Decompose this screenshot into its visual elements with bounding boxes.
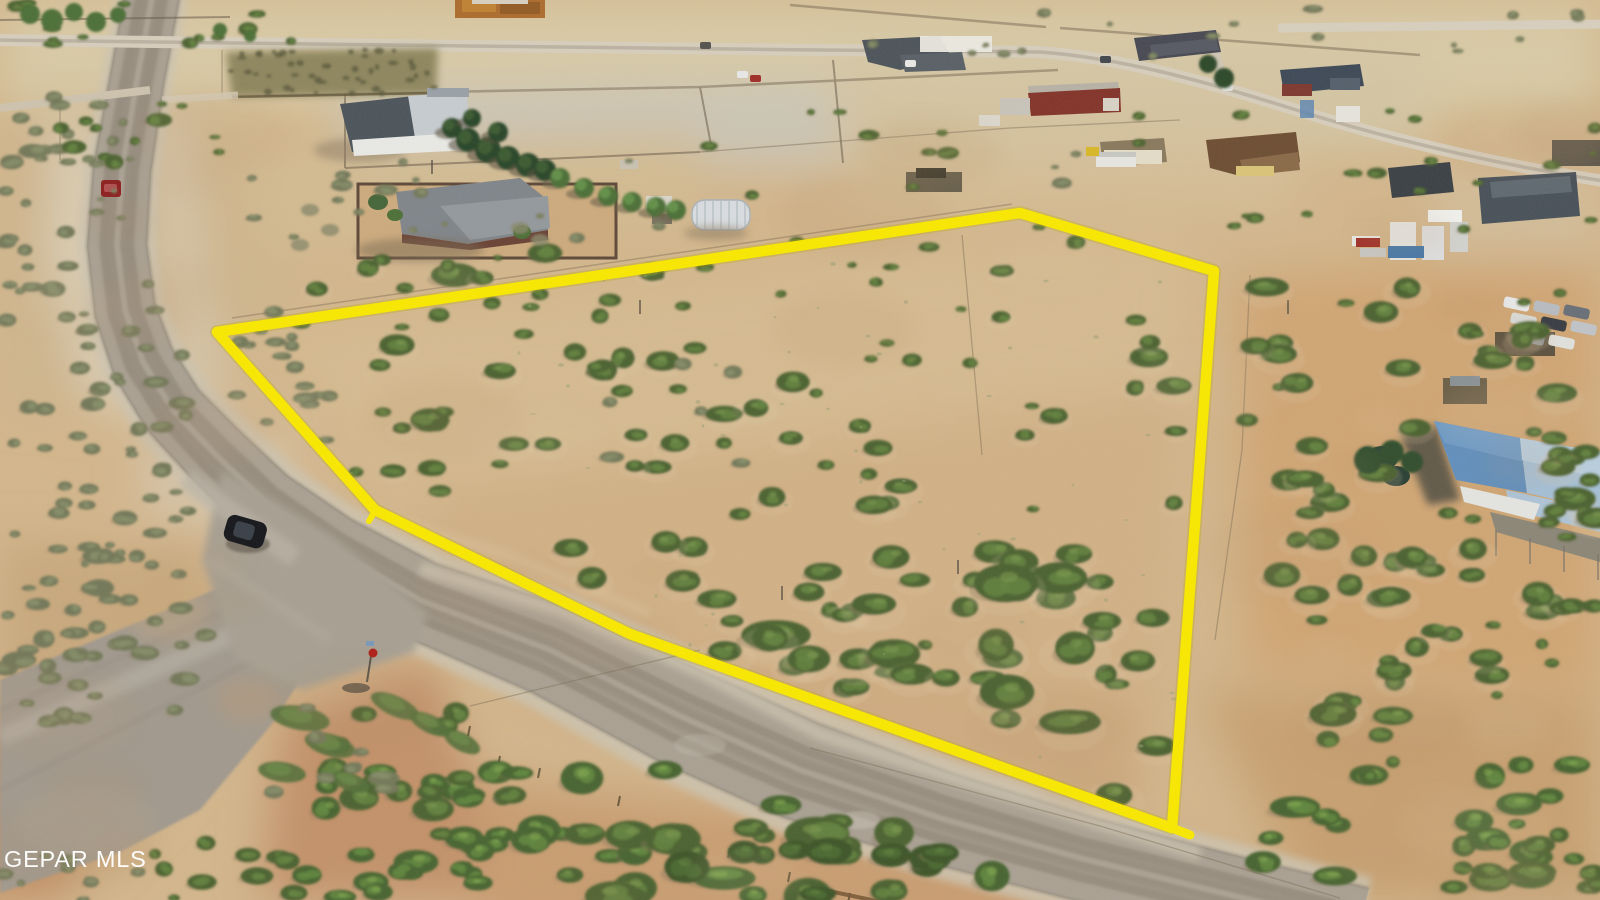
svg-text:GEPAR MLS: GEPAR MLS [4,846,147,872]
